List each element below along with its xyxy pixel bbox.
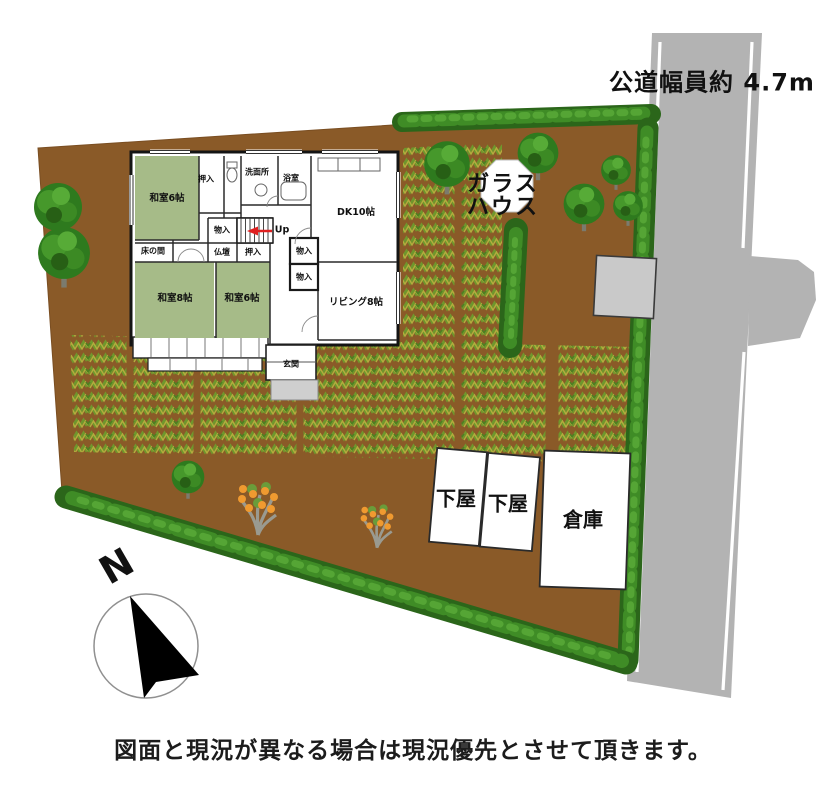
label-oshiire-mid: 押入 (245, 247, 261, 258)
greenhouse-label-line1: ガラス (467, 173, 539, 196)
label-senmenjo: 洗面所 (245, 167, 269, 178)
road-branch (748, 256, 816, 346)
label-butsudan: 仏壇 (214, 247, 230, 258)
label-washitsu6-upper: 和室6帖 (149, 190, 184, 204)
hedge-strip-middle (510, 230, 516, 346)
hedge-top (402, 112, 651, 122)
greenhouse-label-line2: ハウス (467, 196, 539, 219)
entrance-porch (271, 380, 318, 400)
north-arrow-icon (130, 596, 199, 698)
label-oshiire-upper: 押入 (198, 174, 214, 185)
label-yokushitsu: 浴室 (283, 173, 299, 184)
label-washitsu6-lower: 和室6帖 (224, 290, 259, 304)
road-width-label: 公道幅員約 4.7m (609, 70, 815, 95)
site-plan-page: 公道幅員約 4.7m ガラス ハウス 下屋 下屋 倉庫 N 図面と現況が異なる場… (0, 0, 823, 802)
gray-outbuilding (593, 255, 656, 318)
site-plan-drawing (0, 0, 823, 802)
greenhouse-label: ガラス ハウス (467, 173, 539, 219)
label-washitsu8: 和室8帖 (157, 290, 192, 304)
disclaimer-caption: 図面と現況が異なる場合は現況優先とさせて頂きます。 (114, 739, 712, 763)
label-living: リビング8帖 (329, 294, 383, 308)
label-monoiri-1: 物入 (296, 246, 312, 257)
compass (94, 594, 199, 698)
label-up: Up (275, 225, 290, 236)
label-monoiri-stairs: 物入 (214, 225, 230, 236)
label-dk: DK10帖 (337, 204, 375, 218)
veranda (133, 337, 268, 358)
veranda-outer (148, 358, 262, 371)
warehouse-label: 倉庫 (563, 510, 603, 531)
shed2-label: 下屋 (488, 494, 528, 515)
label-genkan: 玄関 (283, 359, 299, 370)
shed1-label: 下屋 (436, 489, 476, 510)
label-monoiri-2: 物入 (296, 272, 312, 283)
label-tokonoma: 床の間 (141, 246, 165, 257)
